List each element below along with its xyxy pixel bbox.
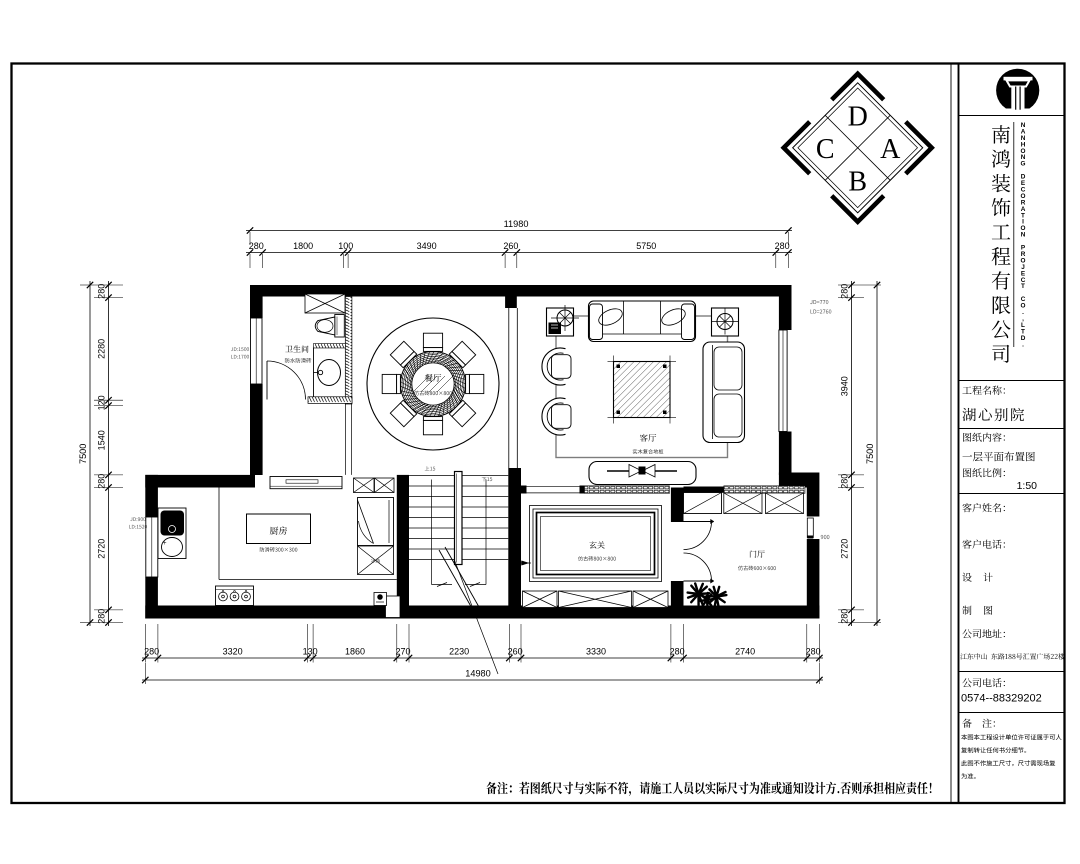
svg-text:0574--88329202: 0574--88329202	[961, 693, 1042, 705]
svg-text:11980: 11980	[504, 219, 529, 229]
svg-text:280: 280	[97, 284, 107, 299]
svg-text:280: 280	[249, 241, 264, 251]
svg-text:280: 280	[144, 647, 159, 657]
svg-text:5750: 5750	[636, 241, 656, 251]
svg-text:14980: 14980	[465, 669, 491, 679]
svg-text:3940: 3940	[840, 376, 850, 396]
svg-text:+: +	[163, 541, 167, 547]
svg-text:2720: 2720	[840, 539, 850, 559]
svg-text:2740: 2740	[735, 647, 755, 657]
svg-text:G: G	[1021, 161, 1026, 168]
svg-text:280: 280	[840, 609, 850, 624]
svg-text:260: 260	[508, 647, 523, 657]
svg-text:3330: 3330	[586, 647, 606, 657]
svg-text:1800: 1800	[293, 241, 313, 251]
svg-text:3490: 3490	[417, 241, 437, 251]
svg-text:100: 100	[338, 241, 353, 251]
svg-text:3320: 3320	[223, 647, 243, 657]
svg-text:270: 270	[395, 647, 410, 657]
svg-text:130: 130	[303, 647, 318, 657]
svg-text:A: A	[880, 134, 901, 165]
svg-text:C: C	[816, 134, 835, 165]
svg-text:D: D	[848, 101, 868, 132]
svg-text:N: N	[1021, 232, 1026, 239]
svg-text:280: 280	[670, 647, 685, 657]
svg-text:280: 280	[97, 474, 107, 489]
svg-text:280: 280	[97, 609, 107, 624]
svg-text:280: 280	[775, 241, 790, 251]
svg-text:7500: 7500	[865, 444, 875, 464]
svg-text:280: 280	[840, 284, 850, 299]
svg-text:120: 120	[97, 395, 107, 410]
svg-text:280: 280	[806, 647, 821, 657]
svg-text:1860: 1860	[345, 647, 365, 657]
svg-text:280: 280	[840, 474, 850, 489]
svg-text:2280: 2280	[97, 339, 107, 359]
svg-text:1540: 1540	[97, 430, 107, 450]
svg-text:7500: 7500	[78, 444, 88, 464]
svg-text:.: .	[1022, 341, 1024, 348]
svg-text:B: B	[848, 166, 867, 197]
svg-text:T: T	[1021, 283, 1025, 290]
svg-text:2720: 2720	[97, 539, 107, 559]
svg-text:260: 260	[503, 241, 518, 251]
svg-text:2230: 2230	[449, 647, 469, 657]
svg-text:1:50: 1:50	[1017, 480, 1038, 492]
